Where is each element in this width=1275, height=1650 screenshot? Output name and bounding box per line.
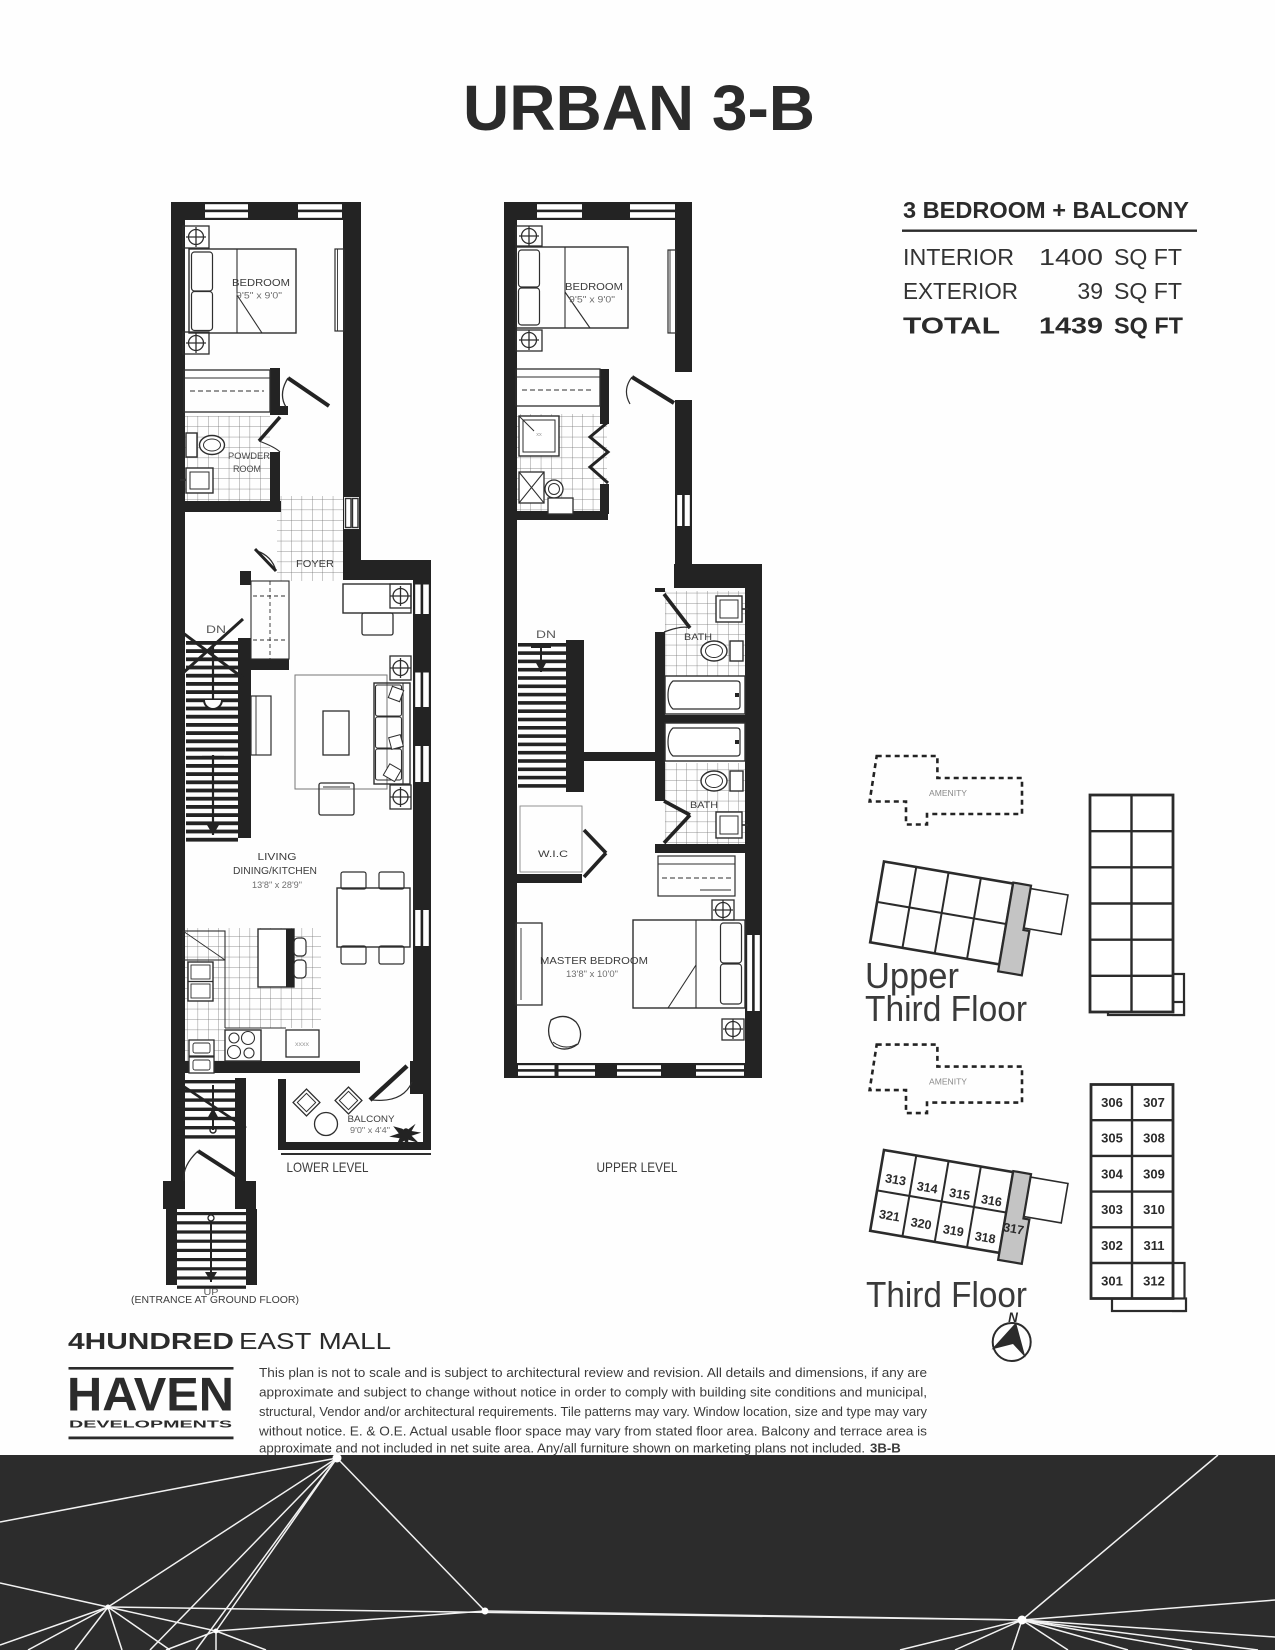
svg-text:xxxx: xxxx: [295, 1042, 309, 1048]
svg-text:AMENITY: AMENITY: [929, 789, 968, 798]
svg-text:9'5" x 9'0": 9'5" x 9'0": [569, 295, 615, 306]
svg-text:3 BEDROOM + BALCONY: 3 BEDROOM + BALCONY: [903, 197, 1189, 223]
svg-text:307: 307: [1143, 1095, 1165, 1110]
svg-text:9'5" x 9'0": 9'5" x 9'0": [236, 291, 282, 302]
svg-text:This plan is not to scale and: This plan is not to scale and is subject…: [259, 1365, 927, 1380]
svg-text:308: 308: [1143, 1131, 1165, 1146]
svg-text:DN: DN: [206, 624, 226, 636]
svg-text:EXTERIOR: EXTERIOR: [903, 278, 1018, 304]
svg-text:POWDER: POWDER: [228, 451, 271, 461]
svg-text:1400: 1400: [1039, 244, 1103, 270]
svg-text:structural, Vendor and/or arch: structural, Vendor and/or architectural …: [259, 1404, 927, 1419]
svg-text:approximate and subject to cha: approximate and subject to change withou…: [259, 1385, 927, 1400]
svg-text:without notice. E. & O.E. Actu: without notice. E. & O.E. Actual usable …: [258, 1424, 927, 1439]
svg-text:304: 304: [1101, 1166, 1123, 1181]
svg-text:FOYER: FOYER: [296, 558, 334, 570]
svg-text:13'8" x 28'9": 13'8" x 28'9": [252, 880, 302, 891]
svg-text:LIVING: LIVING: [258, 851, 297, 863]
svg-text:303: 303: [1101, 1202, 1123, 1217]
svg-text:URBAN 3-B: URBAN 3-B: [463, 72, 815, 144]
svg-text:DEVELOPMENTS: DEVELOPMENTS: [69, 1419, 232, 1431]
svg-text:SQ FT: SQ FT: [1114, 278, 1182, 304]
svg-text:MASTER BEDROOM: MASTER BEDROOM: [540, 955, 648, 967]
svg-text:SQ FT: SQ FT: [1114, 313, 1183, 339]
svg-text:3B-B: 3B-B: [870, 1441, 901, 1456]
svg-text:LOWER LEVEL: LOWER LEVEL: [287, 1159, 369, 1175]
svg-text:Third Floor: Third Floor: [865, 988, 1027, 1029]
svg-text:BEDROOM: BEDROOM: [565, 281, 623, 293]
svg-text:approximate and not included i: approximate and not included in net suit…: [259, 1441, 865, 1456]
svg-text:BATH: BATH: [690, 800, 718, 811]
svg-text:39: 39: [1077, 278, 1103, 304]
svg-text:306: 306: [1101, 1095, 1123, 1110]
svg-text:312: 312: [1143, 1274, 1165, 1289]
svg-text:Third Floor: Third Floor: [866, 1274, 1027, 1315]
svg-text:301: 301: [1101, 1274, 1123, 1289]
svg-text:1439: 1439: [1039, 313, 1103, 339]
svg-text:305: 305: [1101, 1131, 1123, 1146]
svg-text:DINING/KITCHEN: DINING/KITCHEN: [233, 865, 317, 877]
svg-text:DN: DN: [536, 629, 556, 641]
svg-text:BEDROOM: BEDROOM: [232, 277, 290, 289]
svg-text:HAVEN: HAVEN: [67, 1368, 234, 1421]
svg-text:9'0" x 4'4": 9'0" x 4'4": [350, 1125, 390, 1135]
svg-text:4HUNDREDEAST MALL: 4HUNDREDEAST MALL: [68, 1328, 391, 1354]
svg-text:xx: xx: [536, 432, 542, 438]
svg-text:(ENTRANCE AT GROUND FLOOR): (ENTRANCE AT GROUND FLOOR): [131, 1294, 299, 1306]
svg-text:AMENITY: AMENITY: [929, 1078, 968, 1087]
svg-text:BALCONY: BALCONY: [348, 1114, 396, 1125]
svg-text:302: 302: [1101, 1238, 1123, 1253]
svg-text:INTERIOR: INTERIOR: [903, 244, 1014, 270]
svg-text:311: 311: [1144, 1238, 1165, 1253]
svg-text:W.I.C: W.I.C: [538, 849, 568, 860]
svg-text:BATH: BATH: [684, 632, 712, 643]
svg-text:UPPER LEVEL: UPPER LEVEL: [597, 1159, 678, 1175]
svg-text:309: 309: [1143, 1166, 1165, 1181]
svg-text:TOTAL: TOTAL: [903, 313, 1000, 339]
svg-text:ROOM: ROOM: [233, 464, 261, 474]
svg-text:310: 310: [1143, 1202, 1165, 1217]
svg-text:13'8" x 10'0": 13'8" x 10'0": [566, 969, 618, 980]
svg-text:SQ FT: SQ FT: [1114, 244, 1182, 270]
